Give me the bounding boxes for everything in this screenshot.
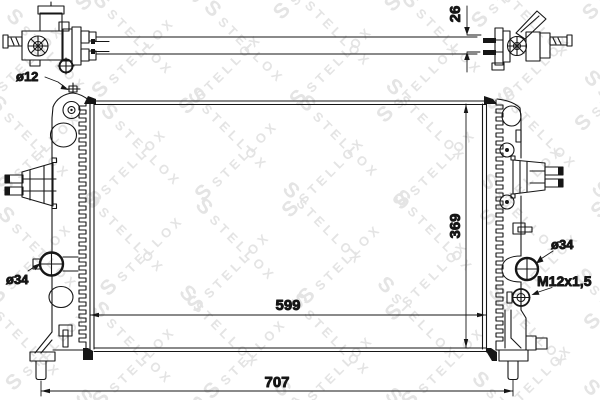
- left-crimp-edge: [79, 101, 86, 350]
- right-foot-bracket: [496, 310, 547, 380]
- radiator-drawing-svg: 26: [0, 0, 600, 400]
- top-view-body: [91, 37, 477, 54]
- bleed-port-label: ø12: [16, 69, 38, 84]
- core-cap-top-right: [484, 96, 497, 104]
- fan-hub-icon: [28, 36, 48, 56]
- right-clip: [513, 223, 532, 234]
- technical-drawing-sheet: SSTELLOXSSTELLOXSSTELLOXSSTELLOXSSTELLOX…: [0, 0, 600, 400]
- core-cap-bottom-right: [486, 348, 497, 361]
- top-view-left-fitting: [3, 2, 96, 74]
- core-depth-label: 26: [447, 6, 464, 23]
- callout-outlet-pipe: ø34: [536, 237, 574, 264]
- dimension-core-depth: 26: [447, 6, 481, 72]
- left-clip: [59, 325, 72, 347]
- callout-drain-plug: M12x1,5: [532, 273, 592, 295]
- filler-hole: [63, 102, 80, 119]
- drain-plug-label: M12x1,5: [537, 273, 592, 289]
- radiator-core: [79, 96, 503, 361]
- overall-width-label: 707: [264, 374, 289, 391]
- core-width-label: 599: [275, 297, 300, 314]
- left-mounting-bracket: [5, 163, 56, 206]
- top-view: 26: [3, 2, 572, 74]
- bleed-screw-icon: [66, 83, 80, 92]
- dimension-overall-width: 707: [41, 374, 513, 396]
- bolt-hole-upper: [500, 143, 514, 157]
- right-mounting-bracket: [511, 156, 563, 198]
- top-view-right-fitting: [483, 11, 572, 70]
- main-view: 369 599 707 ø12: [5, 69, 592, 396]
- tank-opening-lower: [49, 287, 73, 308]
- outlet-pipe-icon: [516, 258, 539, 281]
- callout-inlet-pipe: ø34: [6, 263, 41, 287]
- left-tank: [5, 83, 90, 380]
- core-height-label: 369: [447, 213, 464, 238]
- outlet-pipe-label: ø34: [551, 237, 574, 252]
- dimension-core-height: 369: [447, 104, 468, 348]
- tank-opening-upper: [51, 123, 77, 147]
- dimension-core-width: 599: [90, 297, 486, 317]
- right-crimp-edge: [496, 100, 503, 350]
- callout-bleed-port: ø12: [16, 69, 69, 90]
- drain-plug-icon: [507, 289, 530, 307]
- left-foot-bracket: [30, 332, 86, 380]
- tank-opening-top: [502, 106, 521, 126]
- inlet-pipe-label: ø34: [6, 272, 29, 287]
- fan-hub-icon: [508, 37, 527, 56]
- bolt-hole-lower: [500, 195, 514, 209]
